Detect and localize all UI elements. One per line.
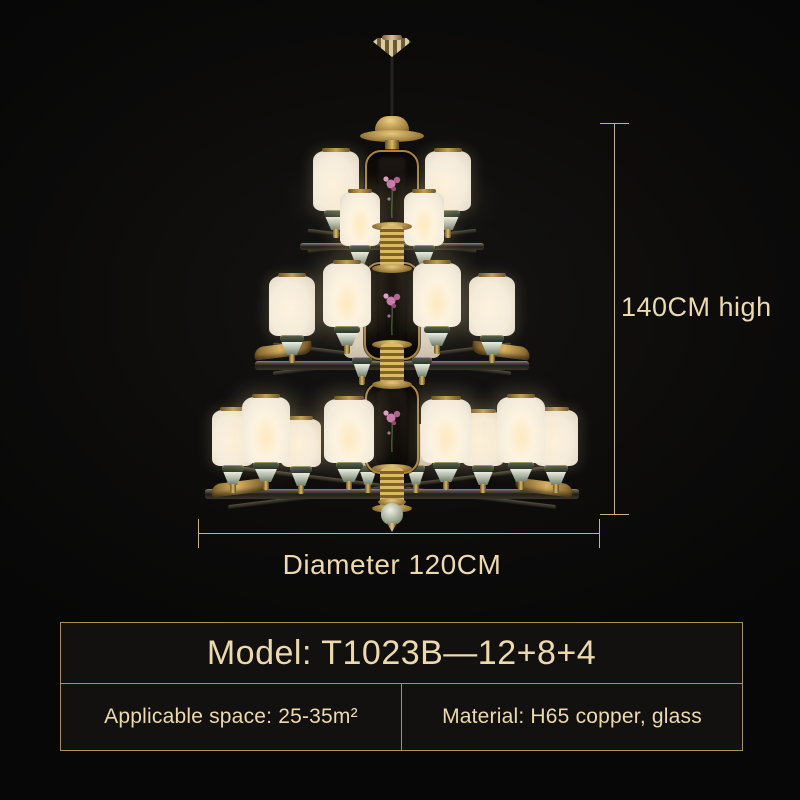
chandelier <box>0 0 800 560</box>
diameter-dimension-line <box>198 533 600 534</box>
lamp-holder-ring <box>508 462 534 469</box>
material-text: Material: H65 copper, glass <box>442 705 702 729</box>
lamp-holder-ring <box>253 462 279 469</box>
hub-flange <box>372 380 412 389</box>
lamp-holder-ring <box>334 326 360 333</box>
shade-rim <box>278 273 306 277</box>
lamp-holder-stem <box>480 484 486 493</box>
model-text: Model: T1023B—12+8+4 <box>207 634 596 673</box>
lamp-holder-stem <box>346 481 352 490</box>
diameter-label: Diameter 120CM <box>242 549 542 581</box>
lamp-shade <box>340 192 380 246</box>
lamp-shade <box>242 397 290 463</box>
lamp-holder-stem <box>413 484 419 493</box>
finial-tip <box>387 523 397 532</box>
lamp-holder-stem <box>230 484 236 493</box>
lamp-holder-ring <box>290 466 312 473</box>
lamp-holder-ring <box>413 245 435 252</box>
shade-rim <box>423 260 452 264</box>
finial-crystal-ball <box>381 503 403 525</box>
shade-rim <box>434 148 462 152</box>
lamp-shade <box>404 192 444 246</box>
lamp-holder-stem <box>298 485 304 494</box>
shade-rim <box>252 394 281 398</box>
height-dimension-line <box>614 123 615 515</box>
lamp-holder-ring <box>412 357 431 364</box>
lamp-shade <box>269 276 315 336</box>
lamp-holder-ring <box>349 245 371 252</box>
hub-flange <box>372 264 412 273</box>
lamp-holder-stem <box>443 481 449 490</box>
lamp-holder-ring <box>472 465 495 472</box>
lamp-holder-ring <box>352 357 371 364</box>
lamp-holder-stem <box>419 376 425 385</box>
lamp-holder-ring <box>222 465 245 472</box>
lamp-holder-stem <box>263 481 269 490</box>
shade-rim <box>543 407 569 411</box>
applicable-space-text: Applicable space: 25-35m² <box>104 705 358 729</box>
lamp-shade <box>413 263 461 327</box>
hanging-cable <box>390 56 394 120</box>
shade-rim <box>431 396 461 400</box>
lamp-holder-ring <box>424 326 450 333</box>
lamp-shade <box>421 399 471 463</box>
lamp-holder-stem <box>434 345 440 354</box>
lamp-holder-stem <box>359 376 365 385</box>
lamp-holder-ring <box>280 335 305 342</box>
product-image-page: 140CM high Diameter 120CM Model: T1023B—… <box>0 0 800 800</box>
shade-rim <box>470 409 495 413</box>
lamp-holder-stem <box>333 229 339 238</box>
diameter-dimension-tick-right <box>599 519 600 548</box>
lamp-holder-stem <box>289 354 295 363</box>
hub-column <box>380 344 404 384</box>
lamp-holder-stem <box>553 484 559 493</box>
lamp-holder-stem <box>518 481 524 490</box>
shade-rim <box>334 396 364 400</box>
lamp-holder-stem <box>445 229 451 238</box>
applicable-space-cell: Applicable space: 25-35m² <box>61 684 402 750</box>
shade-rim <box>412 189 436 193</box>
shade-rim <box>478 273 506 277</box>
flower-motif <box>379 406 405 452</box>
shade-rim <box>348 189 372 193</box>
lamp-holder-ring <box>480 335 505 342</box>
lamp-shade <box>497 397 545 463</box>
flower-motif <box>379 289 405 335</box>
model-row: Model: T1023B—12+8+4 <box>61 623 742 684</box>
lamp-shade <box>469 276 515 336</box>
lamp-shade <box>323 263 371 327</box>
specs-row: Applicable space: 25-35m² Material: H65 … <box>61 684 742 750</box>
lamp-shade <box>324 399 374 463</box>
material-cell: Material: H65 copper, glass <box>402 684 742 750</box>
shade-rim <box>507 394 536 398</box>
shade-rim <box>322 148 350 152</box>
height-dimension-tick-bottom <box>600 514 629 515</box>
lamp-holder-stem <box>344 345 350 354</box>
flower-motif <box>379 172 405 218</box>
ceiling-rose <box>373 38 411 57</box>
lamp-holder-ring <box>433 462 460 469</box>
hub-column <box>380 226 404 268</box>
height-dimension-tick-top <box>600 123 629 124</box>
lamp-holder-ring <box>544 465 568 472</box>
diameter-dimension-tick-left <box>198 519 199 548</box>
ceiling-rose-cap <box>382 35 402 40</box>
shade-rim <box>333 260 362 264</box>
lamp-holder-ring <box>336 462 363 469</box>
product-info-table: Model: T1023B—12+8+4 Applicable space: 2… <box>60 622 743 751</box>
lamp-holder-stem <box>489 354 495 363</box>
height-label: 140CM high <box>621 292 772 323</box>
shade-rim <box>289 416 313 420</box>
lamp-holder-stem <box>365 484 371 493</box>
